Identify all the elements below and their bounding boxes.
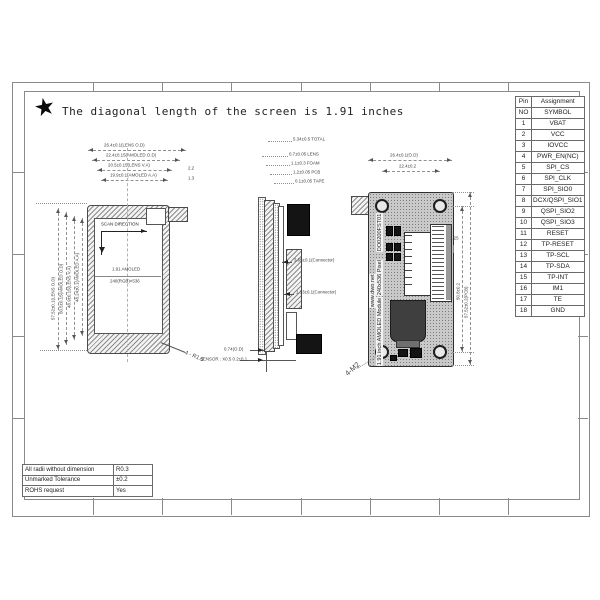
extension-line xyxy=(36,203,87,204)
dim-label: 1.2±0.05 PCB xyxy=(293,170,320,175)
fpc-fold-base xyxy=(396,340,420,348)
pin-no: 1 xyxy=(516,119,532,130)
pin-symbol: VBAT xyxy=(532,119,585,130)
table-row: 8DCX/QSPI_SIO1 xyxy=(516,196,585,207)
leader-line xyxy=(274,183,294,184)
bottom-connector xyxy=(296,334,322,354)
dim-label: 5.34±0.5 TOTAL xyxy=(293,137,325,142)
dim-note: 2.2 xyxy=(188,166,194,171)
component xyxy=(386,226,393,236)
pin-symbol: TP-SDA xyxy=(532,262,585,273)
table-row: 6SPI_CLK xyxy=(516,174,585,185)
frame-tick xyxy=(370,82,371,91)
leader-line xyxy=(250,350,264,351)
dim-line xyxy=(462,206,463,352)
pcb-silkscreen-url: www.dwo.net xyxy=(369,274,376,308)
dim-label: 1.25 xyxy=(450,236,459,241)
frame-tick xyxy=(12,254,24,255)
header-cell: Assignment xyxy=(532,97,585,108)
top-connector xyxy=(287,204,310,236)
table-row: 14TP-SDA xyxy=(516,262,585,273)
pin-symbol: SPI_CLK xyxy=(532,174,585,185)
tolerance-key: ROHS request xyxy=(23,486,114,497)
tolerance-table: All radii without dimensionR0.3 Unmarked… xyxy=(22,464,153,497)
mounting-hole xyxy=(433,345,447,359)
dim-label: 50.8±0.2 xyxy=(456,283,461,300)
pin-no: 14 xyxy=(516,262,532,273)
component xyxy=(410,348,422,358)
dim-line xyxy=(92,160,180,161)
fpc-pins xyxy=(432,226,444,299)
frame-tick xyxy=(439,498,440,515)
dim-label: 1.1±0.3 FOAM xyxy=(291,161,320,166)
component xyxy=(386,243,393,251)
dim-line xyxy=(453,245,454,253)
table-row: 4PWR_EN(NC) xyxy=(516,152,585,163)
dim-label: 20.5±0.15(LENS V.A) xyxy=(108,163,150,168)
centerline xyxy=(127,148,128,362)
tolerance-value: R0.3 xyxy=(114,465,153,476)
mounting-hole xyxy=(375,199,389,213)
leader-line xyxy=(262,156,288,157)
table-row: 15TP-INT xyxy=(516,273,585,284)
frame-tick xyxy=(93,82,94,91)
pin-symbol: DCX/QSPI_SIO1 xyxy=(532,196,585,207)
dim-label: 48.24±0.1(AMOLED A.A) xyxy=(75,253,80,302)
table-row: 17TE xyxy=(516,295,585,306)
dim-note: 1.3 xyxy=(188,176,194,181)
pin-symbol: SPI_CS xyxy=(532,163,585,174)
pin-no: 18 xyxy=(516,306,532,317)
datum-line xyxy=(266,352,267,372)
dim-label: 0.7±0.05 LENS xyxy=(289,152,319,157)
pin-symbol: TE xyxy=(532,295,585,306)
dim-line xyxy=(470,192,471,365)
frame-tick xyxy=(370,498,371,515)
dim-label: 50.5±0.15(AMOLED O.D) xyxy=(59,264,64,314)
frame-tick xyxy=(508,498,509,515)
pin-no: 17 xyxy=(516,295,532,306)
mounting-hole xyxy=(433,199,447,213)
frame-tick xyxy=(439,82,440,91)
pin-symbol: QSPI_SIO3 xyxy=(532,218,585,229)
pin-symbol: IM1 xyxy=(532,284,585,295)
tolerance-value: ±0.2 xyxy=(114,475,153,486)
table-row: 1VBAT xyxy=(516,119,585,130)
panel-midline xyxy=(95,276,161,277)
table-row: 5SPI_CS xyxy=(516,163,585,174)
dim-label: 22.4±0.2 xyxy=(399,164,416,169)
fpc-fold xyxy=(390,300,426,342)
bezel-tab xyxy=(168,207,188,222)
extension-line xyxy=(40,350,87,351)
frame-tick xyxy=(162,82,163,91)
leader-line xyxy=(266,165,290,166)
dim-line xyxy=(101,180,168,181)
component xyxy=(394,226,401,236)
leader-line xyxy=(284,294,294,295)
pin-no: 5 xyxy=(516,163,532,174)
table-row: 18GND xyxy=(516,306,585,317)
leader-line xyxy=(268,141,292,142)
table-row: 10QSPI_SIO3 xyxy=(516,218,585,229)
frame-tick xyxy=(162,498,163,515)
panel-label: 1.91 AMOLED xyxy=(112,267,140,272)
dim-label: 57.52±0.1(LENS O.D) xyxy=(51,277,56,320)
component xyxy=(394,243,401,251)
scan-arrow-vertical xyxy=(101,231,102,255)
table-row: 3IOVCC xyxy=(516,141,585,152)
frame-tick xyxy=(301,82,302,91)
dim-line xyxy=(97,170,172,171)
component xyxy=(394,253,401,261)
table-row: 13TP-SCL xyxy=(516,251,585,262)
pin-no: 12 xyxy=(516,240,532,251)
dim-line xyxy=(82,218,83,336)
drawing-title: The diagonal length of the screen is 1.9… xyxy=(62,105,404,118)
dim-label: 26.4±0.1(O.D) xyxy=(390,153,418,158)
pin-no: 15 xyxy=(516,273,532,284)
table-row: 11RESET xyxy=(516,229,585,240)
frame-tick xyxy=(301,498,302,515)
pin-no: 7 xyxy=(516,185,532,196)
pin-no: 2 xyxy=(516,130,532,141)
dim-label: 26.4±0.1(LENS O.D) xyxy=(104,143,145,148)
pin-symbol: QSPI_SIO2 xyxy=(532,207,585,218)
pin-assignment-table: Pin Assignment NO SYMBOL 1VBAT 2VCC 3IOV… xyxy=(515,96,585,317)
table-header-row: Pin Assignment xyxy=(516,97,585,108)
sensor-window xyxy=(146,208,166,225)
dim-label: 48.9±0.15(LENS V.A) xyxy=(67,266,72,308)
tolerance-key: Unmarked Tolerance xyxy=(23,475,114,486)
table-row: Unmarked Tolerance±0.2 xyxy=(23,475,153,486)
component xyxy=(386,253,393,261)
scan-direction-label: SCAN DIRECTION xyxy=(101,222,139,227)
pin-symbol: RESET xyxy=(532,229,585,240)
pin-no: 3 xyxy=(516,141,532,152)
frame-tick xyxy=(12,336,24,337)
frame-tick xyxy=(578,336,588,337)
pin-symbol: PWR_EN(NC) xyxy=(532,152,585,163)
dim-line xyxy=(88,150,186,151)
pin-no: 13 xyxy=(516,251,532,262)
dim-label: 0.1±0.05 TAPE xyxy=(295,179,324,184)
pin-symbol: GND xyxy=(532,306,585,317)
engineering-drawing: ★ The diagonal length of the screen is 1… xyxy=(0,0,600,600)
pin-no: 16 xyxy=(516,284,532,295)
table-row: 2VCC xyxy=(516,130,585,141)
frame-tick xyxy=(12,172,24,173)
scan-arrow-horizontal xyxy=(101,231,147,232)
leader-line xyxy=(270,174,292,175)
component xyxy=(390,355,397,361)
table-row: ROHS requestYes xyxy=(23,486,153,497)
pin-symbol: TP-RESET xyxy=(532,240,585,251)
component xyxy=(398,349,408,357)
tolerance-key: All radii without dimension xyxy=(23,465,114,476)
dim-line xyxy=(368,160,452,161)
pin-symbol: TP-INT xyxy=(532,273,585,284)
leader-line xyxy=(282,262,292,263)
pin-no: 4 xyxy=(516,152,532,163)
sensor-note: SENSOR : X0.5 0.2±0.1 xyxy=(200,357,247,362)
frame-tick xyxy=(231,82,232,91)
dim-line xyxy=(382,171,440,172)
frame-tick xyxy=(231,498,232,515)
pin-no: 6 xyxy=(516,174,532,185)
tolerance-value: Yes xyxy=(114,486,153,497)
dim-label: 22.4±0.15(AMOLED O.D) xyxy=(106,153,156,158)
dim-label: 1.33±0.1(Connector) xyxy=(296,290,336,295)
pcb-silkscreen-part: DO0200FST01 xyxy=(376,213,383,252)
frame-tick xyxy=(578,418,588,419)
pin-symbol: IOVCC xyxy=(532,141,585,152)
connector-teeth xyxy=(405,235,412,291)
board-connector xyxy=(404,232,432,296)
table-header-row: NO SYMBOL xyxy=(516,108,585,119)
pin-no: 9 xyxy=(516,207,532,218)
header-cell: NO xyxy=(516,108,532,119)
dim-label: 0.74(O.D) xyxy=(224,347,243,352)
table-row: 9QSPI_SIO2 xyxy=(516,207,585,218)
frame-tick xyxy=(12,418,24,419)
table-row: 12TP-RESET xyxy=(516,240,585,251)
panel-label: 240(RGB)×536 xyxy=(110,279,140,284)
pcb-silkscreen-resolution: 240x536 Pixel xyxy=(376,259,383,296)
dim-label: 3.65±0.1(Connector) xyxy=(294,258,334,263)
pin-symbol: TP-SCL xyxy=(532,251,585,262)
pin-no: 10 xyxy=(516,218,532,229)
frame-tick xyxy=(93,498,94,515)
dim-label: 57.52±0.2(PCB) xyxy=(464,286,469,318)
header-cell: Pin xyxy=(516,97,532,108)
star-icon: ★ xyxy=(32,94,58,122)
header-cell: SYMBOL xyxy=(532,108,585,119)
table-row: All radii without dimensionR0.3 xyxy=(23,465,153,476)
table-row: 7SPI_SIO0 xyxy=(516,185,585,196)
frame-tick xyxy=(508,82,509,91)
pin-no: 8 xyxy=(516,196,532,207)
dim-label: 19.9±0.1(AMOLED A.A) xyxy=(110,173,157,178)
pcb-layer xyxy=(278,206,284,346)
fpc-connector xyxy=(430,224,452,302)
pin-no: 11 xyxy=(516,229,532,240)
pcb-silkscreen-name: 1.91 inch AMOLED Module xyxy=(376,297,383,366)
pin-symbol: VCC xyxy=(532,130,585,141)
pin-symbol: SPI_SIO0 xyxy=(532,185,585,196)
table-row: 16IM1 xyxy=(516,284,585,295)
